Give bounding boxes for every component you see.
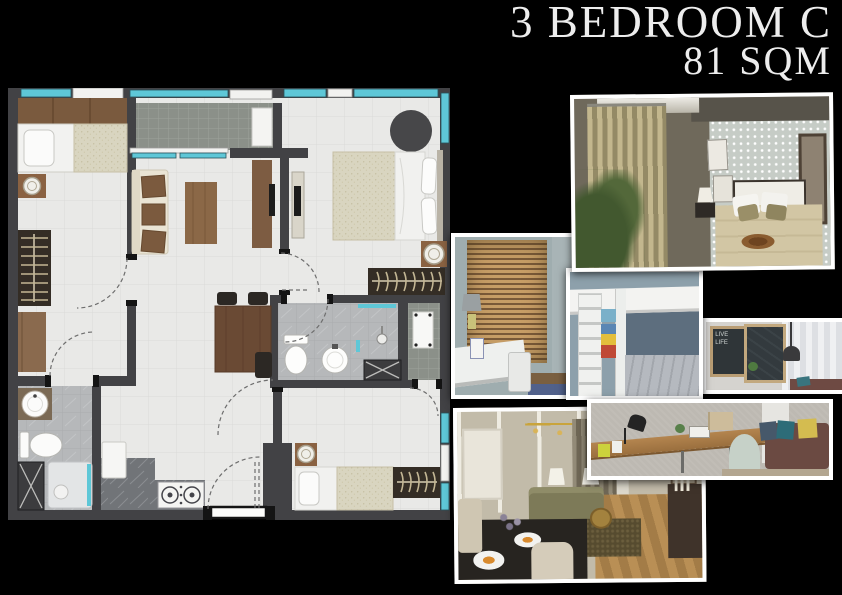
sink-icon: [322, 347, 348, 373]
stool-icon: [298, 446, 315, 463]
balcony-floor: [128, 103, 273, 150]
shower-area: [48, 462, 92, 508]
fridge: [102, 442, 126, 478]
shower-glass: [358, 304, 396, 308]
chair: [508, 352, 531, 392]
photo-long-desk: [587, 399, 833, 480]
desk-leg: [681, 451, 684, 473]
console-table: [668, 484, 703, 558]
photo-bunk-bed: [566, 268, 703, 400]
window-balcony-inner: [132, 153, 176, 158]
tv-icon: [269, 184, 275, 216]
storage-box-blue: [601, 309, 616, 321]
window-bed3: [441, 413, 449, 443]
round-rug: [390, 110, 432, 152]
wall-dark: [624, 307, 699, 359]
pillow-teal: [796, 376, 810, 386]
toilet-tank: [284, 335, 308, 344]
floor-plan: [8, 88, 450, 532]
dining-chair: [531, 542, 573, 579]
toy: [468, 314, 476, 328]
stool-icon: [54, 485, 68, 499]
photo-frames: [689, 426, 710, 437]
file-boxes: [708, 412, 734, 430]
title-line1: 3 BEDROOM C: [510, 2, 832, 43]
master-bed-sheet: [395, 152, 425, 240]
mug: [470, 338, 484, 359]
photo-master-bedroom: [570, 92, 835, 272]
coffee-table: [185, 182, 217, 244]
window-bed2: [21, 89, 71, 97]
wall-frame: [707, 139, 728, 171]
page-title: 3 BEDROOM C 81 SQM: [510, 2, 832, 80]
window-master-top: [284, 89, 326, 97]
lamp-arm: [624, 428, 626, 444]
sofa-cushion: [141, 230, 166, 253]
bed2-blanket: [74, 124, 127, 172]
master-bed-blanket: [333, 152, 395, 240]
toilet-icon: [30, 433, 62, 457]
bed3-pillow: [299, 472, 319, 505]
sofa-cushion: [141, 175, 165, 198]
plant: [575, 169, 645, 268]
nightstand: [695, 202, 716, 217]
pillow-teal: [776, 420, 794, 439]
shelf-nook: [462, 428, 503, 500]
bed3-blanket: [337, 467, 393, 510]
sofa-cushion: [142, 204, 165, 225]
plant: [674, 423, 686, 433]
brochure-page: 3 BEDROOM C 81 SQM: [0, 0, 842, 595]
bed2-pillow: [24, 130, 54, 166]
stool-icon: [424, 244, 444, 264]
window-master-side: [441, 93, 449, 143]
lamp: [548, 468, 565, 485]
cup-yellow: [598, 444, 610, 457]
plant: [747, 361, 760, 372]
dining-chair: [255, 352, 272, 378]
cup-white: [612, 441, 622, 453]
toilet-tank: [20, 432, 29, 458]
door-leaf: [211, 507, 266, 518]
ladder: [578, 293, 602, 398]
photo-chalkboard-study: LIVELIFE: [702, 318, 842, 394]
dining-chair: [458, 499, 483, 553]
headboard: [18, 98, 127, 124]
side-table-gold: [590, 508, 612, 528]
shower-icon: [377, 334, 387, 344]
pendant-cord: [790, 322, 792, 348]
toilet-icon: [285, 346, 307, 374]
storage-boxes: [601, 324, 616, 357]
chalkboard-large: [744, 324, 786, 383]
dining-chair: [217, 292, 237, 305]
chalkboard: LIVELIFE: [710, 326, 747, 377]
balcony-table: [252, 108, 272, 146]
window-balcony-top: [130, 90, 228, 97]
laundry-rack: [413, 312, 433, 348]
rug: [722, 469, 829, 476]
desk-lamp: [462, 294, 482, 311]
soffit: [691, 96, 829, 121]
headboard: [437, 150, 443, 242]
tv-icon: [294, 186, 301, 216]
mattress: [625, 355, 699, 396]
pillow-floral: [759, 421, 777, 440]
flowers: [492, 505, 531, 536]
stool-icon: [24, 178, 41, 195]
accent-pillow: [766, 204, 788, 222]
pillow: [421, 198, 437, 235]
pendant-lamp: [783, 346, 800, 361]
pillow: [421, 158, 437, 195]
pillow-yellow: [797, 418, 817, 438]
title-line2: 81 SQM: [510, 43, 832, 80]
lamp: [697, 187, 712, 202]
shower-glass: [87, 464, 91, 506]
balcony: [252, 108, 272, 146]
dining-chair: [248, 292, 268, 305]
wall-frame: [713, 175, 733, 203]
